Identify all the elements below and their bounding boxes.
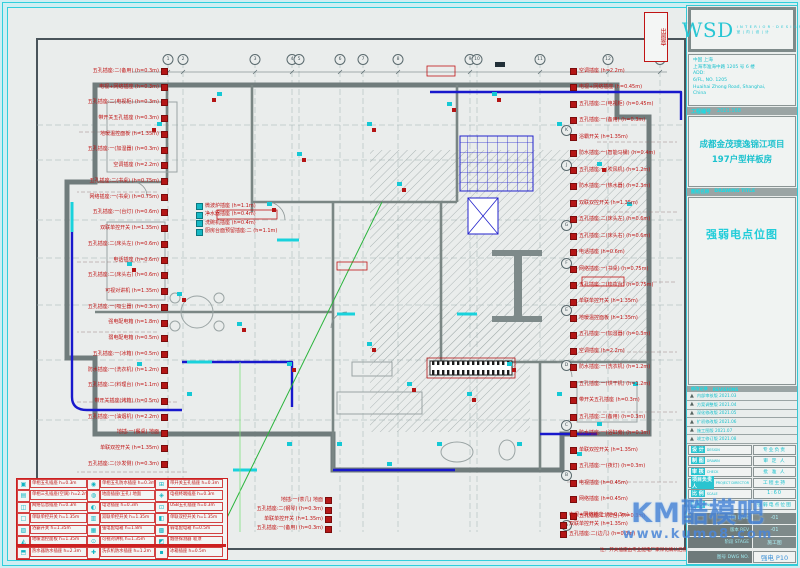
revision-triangle-icon: ▲ [690,402,694,407]
legend-label: USB五孔插座 h=0.3m [168,502,223,511]
socket-marker-icon [161,99,168,106]
legend-label: 浴霸开关 h=1.35m [30,525,87,534]
revision-text: 方案调整版 2021.04 [697,402,737,408]
socket-marker-icon [161,194,168,201]
revision-row: ▲ 扩初修改版 2021.06 [687,418,797,427]
grid-bubble: 10 [472,54,483,65]
point-label: 防水插座:一(洗衣机) (h=1.2m) [38,367,168,374]
legend-symbol-icon: ⊞ [155,479,168,490]
socket-marker-icon [161,367,168,374]
socket-marker-icon [161,178,168,185]
revisions-label-en: REVISIONS [713,387,739,392]
point-label: 带开关插座(烤箱) (h=0.5m) [38,398,168,405]
grid-bubble: 7 [358,54,369,65]
grid-bubble: 5 [294,54,305,65]
legend-symbol-icon: ✚ [87,547,100,558]
point-label: 微波炉插座 (h=1.1m) [196,203,326,210]
socket-marker-icon [570,397,577,404]
field-value-cell: 强弱电点位图 [753,500,796,510]
point-label: 防水插座:一(智能马桶) (h=0.4m) [570,150,682,157]
point-label: 电视插座 (h=0.45m) [570,480,682,487]
meta-label-cell: 阶段 STAGE [688,537,752,548]
socket-marker-icon [196,220,203,227]
meta-value-cell: -01 [753,525,796,536]
revision-text: 扩初修改版 2021.06 [697,419,737,425]
field-label-cell: 制 图 DRAWN [688,456,752,466]
point-label: 单联单控开关 (h=1.35m) [570,299,682,306]
meta-value-cell: -01 [753,513,796,524]
socket-marker-icon [325,516,332,523]
revision-row: ▲ 竣工修订版 2021.08 [687,435,797,444]
point-label: 地插:一(茶几) 地面 [214,497,332,504]
point-label: 单联双控开关 (h=1.35m) [38,445,168,452]
socket-marker-icon [196,212,203,219]
revision-row: ▲ 施工图版 2021.07 [687,427,797,436]
meta-row: 阶段 STAGE 施工图 [688,537,796,548]
socket-marker-icon [161,461,168,468]
right-label-column: 空调插座 (h=2.2m)电视+网络插座 (h=0.45m)五孔插座:二(电视柜… [570,68,682,520]
socket-marker-icon [161,209,168,216]
point-label: 空调插座 (h=2.2m) [570,348,682,355]
point-label: 五孔插座:二(梳妆台) (h=0.75m) [570,282,682,289]
grid-bubble: 12 [603,54,614,65]
point-label: 双联双控开关 (h=1.35m) [570,200,682,207]
field-value: 批 准 人 [763,468,785,475]
red-stamp: 出图章 [644,12,668,62]
socket-marker-icon [325,507,332,514]
field-value-cell: 批 准 人 [753,467,796,477]
socket-marker-icon [196,229,203,236]
revision-triangle-icon: ▲ [690,420,694,425]
x-box [468,198,498,234]
socket-marker-icon [161,398,168,405]
field-label-cell: 图 号 NO. [688,500,752,510]
field-label-en: CHECK [707,470,719,474]
socket-marker-icon [570,249,577,256]
socket-marker-icon [570,480,577,487]
drawing-title: 强弱电点位图 [706,226,778,242]
revision-text: 深化修改版 2021.05 [697,410,737,416]
point-label: 五孔插座:二(床头右) (h=0.6m) [570,233,682,240]
socket-marker-icon [196,203,203,210]
project-number-label: 工程编号 [691,108,711,115]
socket-marker-icon [570,496,577,503]
project-number-row: 工程编号 2021.168 [687,107,797,115]
grid-bubble: 1 [163,54,174,65]
legend-symbol-icon: ◍ [87,490,100,501]
socket-marker-icon [570,463,577,470]
socket-marker-icon [570,266,577,273]
point-label: 空调插座 (h=2.2m) [38,162,168,169]
signature-row: 设 计 DESIGN 专业负责 [688,445,796,455]
legend-label: 单联单控开关 h=1.35m [30,513,87,522]
field-label-en: DESIGN [707,448,720,452]
legend-label: 带开关五孔插座 h=0.3m [168,479,223,488]
point-label: 弱电配电箱 (h=0.5m) [38,335,168,342]
point-label: 五孔插座:一(加湿器) (h=0.3m) [570,332,682,339]
point-label: 电话插座 (h=0.6m) [38,257,168,264]
point-label: 单联单控开关 (h=1.35m) [214,516,332,523]
field-value-cell: 审 定 人 [753,456,796,466]
point-label: 五孔插座:一(油烟机) (h=2.2m) [38,414,168,421]
north-mark [495,62,505,67]
legend-symbol-icon: ◫ [17,502,30,513]
kitchen-label-cluster: 微波炉插座 (h=1.1m)净水器插座 (h=0.4m)洗碗机插座 (h=0.4… [196,203,326,236]
revision-triangle-icon: ▲ [690,437,694,442]
point-label: 电视+网络插座 (h=0.3m) [38,84,168,91]
green-lines [217,202,382,538]
revision-row: ▲ 方案调整版 2021.04 [687,401,797,410]
socket-marker-icon [161,225,168,232]
legend-label: 弱电配电箱 h=0.5m [168,525,223,534]
grid-bubble: 3 [250,54,261,65]
field-label-en: NO. [707,503,713,507]
socket-marker-icon [570,167,577,174]
address-line: Huaihai Zhong Road, Shanghai, [693,85,791,92]
socket-marker-icon [570,381,577,388]
socket-marker-icon [560,522,567,529]
address-line: China [693,91,791,98]
signature-row: 比 例 SCALE 1:60 [688,489,796,499]
socket-marker-icon [570,315,577,322]
point-label: 地插:一(餐桌) 地面 [38,430,168,437]
socket-marker-icon [161,68,168,75]
legend-symbol-icon: ▤ [17,490,30,501]
signature-row: 图 号 NO. 强弱电点位图 [688,500,796,510]
socket-marker-icon [570,84,577,91]
field-label-cell: 设 计 DESIGN [688,445,752,455]
field-label-cn: 设 计 [691,446,705,453]
wsd-logo-text: WSD [682,18,734,42]
point-label: 单联双控开关 (h=1.35m) [570,447,682,454]
socket-marker-icon [570,134,577,141]
logo-subtext-en: I N T E R I O R · D E S I G N [737,25,800,29]
point-label: 五孔插座:一(备用) (h=0.3m) [570,117,682,124]
field-value: 工程主持 [763,479,786,486]
legend-label: 热水器防水插座 h=2.3m [30,547,87,556]
meta-row: 版本 REV -01 [688,525,796,536]
socket-marker-icon [570,447,577,454]
revisions-label-cn: 修改记录 [691,386,708,392]
point-label: 五孔插座:二(书桌) (h=0.75m) [38,178,168,185]
revision-row: ▲ 深化修改版 2021.05 [687,410,797,419]
address-line: 中国 上海 [693,58,791,65]
socket-marker-icon [325,526,332,533]
legend-label: 单联双控开关 h=1.35m [168,513,223,522]
meta-label-cell: 版本 REV [688,525,752,536]
bottom-label-cluster-a: 地插:一(茶几) 地面五孔插座:二(钢琴) (h=0.3m)单联单控开关 (h=… [214,497,332,533]
point-label: 五孔插座:一(冰箱) (h=0.5m) [38,351,168,358]
legend-symbol-icon: □ [17,513,30,524]
legend-label: 电视终端插座 h=0.3m [168,490,223,499]
socket-marker-icon [570,150,577,157]
point-label: 双联单控开关 (h=1.35m) [560,522,680,529]
point-label: 五孔插座:一(加湿器) (h=0.3m) [38,147,168,154]
socket-marker-icon [161,351,168,358]
socket-marker-icon [570,364,577,371]
field-value: 专业负责 [763,446,786,453]
field-label-en: DRAWN [707,459,720,463]
socket-marker-icon [161,320,168,327]
point-label: 五孔插座:一(台灯) (h=0.6m) [38,209,168,216]
grid-bubble: 6 [335,54,346,65]
point-label: 厨房台面预留插座:二 (h=1.1m) [196,229,326,236]
socket-marker-icon [325,497,332,504]
socket-marker-icon [570,414,577,421]
revision-row: ▲ 内部审核版 2021.03 [687,392,797,401]
cad-sheet: 12345678910111213 KJGFEDCBA 五孔插座:二(备用) (… [0,0,800,568]
legend-label: 双联单控开关 h=1.35m [100,513,155,522]
field-label-cell: 比 例 SCALE [688,489,752,499]
socket-marker-icon [161,115,168,122]
field-value-cell: 1:60 [753,489,796,499]
point-label: 净水器插座 (h=0.4m) [196,212,326,219]
legend-table: ▣ 单相五孔插座 h=0.3m ◉ 单相五孔防水插座 h=0.3m ⊞ 带开关五… [16,478,228,560]
socket-marker-icon [560,531,567,538]
socket-marker-icon [570,117,577,124]
project-name: 成都金茂璞逸锦江项目 197户型样板房 [688,116,796,187]
plan-note: 注：开关插座由专业配电厂家深化确认后施工 [600,547,692,553]
field-value: 强弱电点位图 [757,501,792,508]
point-label: 强电配电箱 (h=1.8m) [38,320,168,327]
point-label: 浴霸开关 (h=1.35m) [570,134,682,141]
point-label: 地暖温控面板 (h=1.35m) [38,131,168,138]
sheet-number-row: 图号 DWG NO. 强电 P10 [688,551,796,563]
socket-marker-icon [570,101,577,108]
point-label: 洗碗机插座 (h=0.4m) [196,220,326,227]
point-label: 五孔插座:二(备用) (h=0.3m) [570,414,682,421]
field-value-cell: 工程主持 [753,478,796,488]
legend-label: 单相五孔防水插座 h=0.3m [100,479,155,488]
socket-marker-icon [570,233,577,240]
field-value: 审 定 人 [763,457,785,464]
field-label-cn: 制 图 [691,457,705,464]
company-logo: WSD I N T E R I O R · D E S I G N 室 | 内 … [688,7,796,52]
point-label: 五孔插座:二(备用) (h=0.3m) [38,68,168,75]
point-label: 五孔插座:二(床头右) (h=0.6m) [38,272,168,279]
point-label: 五孔插座:二(料理台) (h=1.1m) [38,382,168,389]
socket-marker-icon [161,304,168,311]
revision-triangle-icon: ▲ [690,411,694,416]
socket-marker-icon [570,299,577,306]
sheet-number-label: 图号 DWG NO. [717,554,749,560]
socket-marker-icon [161,382,168,389]
field-label-cn: 项目负责人 [691,476,714,490]
legend-label: 冰箱插座 h=0.5m [168,547,223,556]
socket-marker-icon [570,183,577,190]
meta-row: 日期 DATE -01 [688,513,796,524]
field-label-cn: 审 核 [691,468,705,475]
field-label-cn: 图 号 [691,501,705,508]
field-value-cell: 专业负责 [753,445,796,455]
point-label: 五孔插座:一(吸尘器) (h=0.3m) [38,304,168,311]
company-address: 中国 上海上海市淮海中路 1205 号 6 楼ADD:6/FL, NO. 120… [688,54,796,106]
point-label: 五孔插座:二(沙发侧) (h=0.3m) [38,461,168,468]
point-label: 电视+网络插座 (h=0.3m) [560,512,680,519]
legend-symbol-icon: ◈ [155,490,168,501]
revision-triangle-icon: ▲ [690,394,694,399]
sheet-number-value: 强电 P10 [761,552,788,562]
point-label: 带开关五孔插座 (h=0.3m) [38,115,168,122]
meta-label-cell: 日期 DATE [688,513,752,524]
meta-rows: 日期 DATE -01 版本 REV -01 阶段 STAGE 施工图 [688,513,796,549]
legend-symbol-icon: ▩ [155,525,168,536]
point-label: 五孔插座:一(备用) (h=0.3m) [214,526,332,533]
address-line: 上海市淮海中路 1205 号 6 楼 [693,65,791,72]
socket-marker-icon [570,216,577,223]
socket-marker-icon [161,414,168,421]
point-label: 可视对讲机 (h=1.35m) [38,288,168,295]
signature-row: 制 图 DRAWN 审 定 人 [688,456,796,466]
point-label: 五孔插座:一(吹风机) (h=1.2m) [570,167,682,174]
skylight-grid [460,136,533,191]
legend-label: 强电配电箱 h=1.8m [100,525,155,534]
point-label: 五孔插座:二(电视柜) (h=0.3m) [38,99,168,106]
socket-marker-icon [161,430,168,437]
project-name-line2: 197户型样板房 [712,153,772,165]
point-label: 防水插座:一(热水器) (h=2.3m) [570,183,682,190]
title-block: WSD I N T E R I O R · D E S I G N 室 | 内 … [686,5,798,565]
drawing-title-label-cn: 图纸名称 [691,189,709,195]
field-label-en: PROJECT DIRECTOR [716,481,749,485]
point-label: 五孔插座:二(电视柜) (h=0.45m) [570,101,682,108]
address-line: 6/FL, NO. 1205 [693,78,791,85]
point-label: 带开关五孔插座 (h=0.3m) [570,397,682,404]
socket-marker-icon [570,332,577,339]
point-label: 五孔插座:二(边几) (h=0.3m) [560,531,680,538]
socket-marker-icon [161,335,168,342]
point-label: 五孔插座:二(钢琴) (h=0.3m) [214,507,332,514]
socket-marker-icon [570,68,577,75]
legend-label: 单相三孔插座(空调) h=2.2m [30,490,87,499]
point-label: 网络插座 (h=0.45m) [570,496,682,503]
legend-symbol-icon: ▨ [17,525,30,536]
point-label: 五孔插座:二(床头左) (h=0.6m) [570,216,682,223]
legend-label: 单相五孔插座 h=0.3m [30,479,87,488]
sheet-number-label-cell: 图号 DWG NO. [688,551,752,563]
legend-label: 地面插座(五孔) 地面 [100,490,155,499]
socket-marker-icon [570,200,577,207]
project-name-line1: 成都金茂璞逸锦江项目 [699,138,784,150]
legend-symbol-icon: ⬒ [17,547,30,558]
socket-marker-icon [570,348,577,355]
socket-marker-icon [161,147,168,154]
socket-marker-icon [570,430,577,437]
sheet-number-value-cell: 强电 P10 [753,551,796,563]
legend-symbol-icon: ▥ [87,513,100,524]
field-label-cell: 项目负责人 PROJECT DIRECTOR [688,478,752,488]
field-value: 1:60 [767,491,782,496]
point-label: 防水插座:一(洗衣机) (h=1.2m) [570,364,682,371]
socket-marker-icon [161,241,168,248]
revision-triangle-icon: ▲ [690,428,694,433]
point-label: 网络插座:一(书桌) (h=0.75m) [38,194,168,201]
drawing-title-label-en: DRAWING TITLE [714,189,755,194]
revision-text: 内部审核版 2021.03 [697,393,737,399]
legend-footer-bar [16,544,226,547]
grid-bubble: 11 [535,54,546,65]
field-label-en: SCALE [707,492,718,496]
point-label: 五孔插座:一(夜灯) (h=0.3m) [570,463,682,470]
socket-marker-icon [560,512,567,519]
point-label: 双联单控开关 (h=1.35m) [38,225,168,232]
project-number-value: 2021.168 [717,108,741,114]
revision-rows: ▲ 内部审核版 2021.03 ▲ 方案调整版 2021.04 ▲ 深化修改版 … [687,392,797,444]
grid-bubble: 2 [178,54,189,65]
signature-row: 项目负责人 PROJECT DIRECTOR 工程主持 [688,478,796,488]
point-label: 五孔插座:二(床头左) (h=0.6m) [38,241,168,248]
bottom-label-cluster-b: 电视+网络插座 (h=0.3m)双联单控开关 (h=1.35m)五孔插座:二(边… [560,512,680,538]
drawing-title-header: 图纸名称 DRAWING TITLE [687,188,797,195]
socket-marker-icon [161,131,168,138]
point-label: 网络插座:一(书桌) (h=0.75m) [570,266,682,273]
legend-symbol-icon: ▣ [17,479,30,490]
socket-marker-icon [161,288,168,295]
socket-marker-icon [161,445,168,452]
meta-value-cell: 施工图 [753,537,796,548]
point-label: 电话插座 (h=0.6m) [570,249,682,256]
grid-bubble: 8 [393,54,404,65]
left-label-column: 五孔插座:二(备用) (h=0.3m)电视+网络插座 (h=0.3m)五孔插座:… [38,68,168,468]
socket-marker-icon [161,162,168,169]
legend-symbol-icon: ▦ [87,525,100,536]
drawing-title-box: 强弱电点位图 [688,197,796,385]
signature-fields: 设 计 DESIGN 专业负责 制 图 DRAWN 审 定 人 [688,445,796,511]
legend-label: 洗衣机防水插座 h=1.2m [100,547,155,556]
revision-text: 竣工修订版 2021.08 [697,436,737,442]
field-label-cn: 比 例 [691,490,705,497]
legend-symbol-icon: ◉ [87,479,100,490]
socket-marker-icon [161,257,168,264]
revision-text: 施工图版 2021.07 [697,428,732,434]
point-label: 地暖温控面板 (h=1.35m) [570,315,682,322]
socket-marker-icon [161,272,168,279]
point-label: 空调插座 (h=2.2m) [570,68,682,75]
legend-label: 网络信息插座 h=0.3m [30,502,87,511]
legend-symbol-icon: ◐ [87,502,100,513]
socket-marker-icon [161,84,168,91]
socket-marker-icon [570,282,577,289]
legend-symbol-icon: ◧ [155,513,168,524]
legend-symbol-icon: ▪ [155,547,168,558]
legend-label: 电话插座 h=0.3m [100,502,155,511]
logo-subtext-cn: 室 | 内 | 设 | 计 [737,30,800,35]
piano-keyboard [427,358,515,378]
point-label: 防水插座:一(浴缸旁) (h=0.3m) [570,430,682,437]
legend-symbol-icon: ⊡ [155,502,168,513]
point-label: 五孔插座:一(烘干机) (h=1.2m) [570,381,682,388]
point-label: 电视+网络插座 (h=0.45m) [570,84,682,91]
